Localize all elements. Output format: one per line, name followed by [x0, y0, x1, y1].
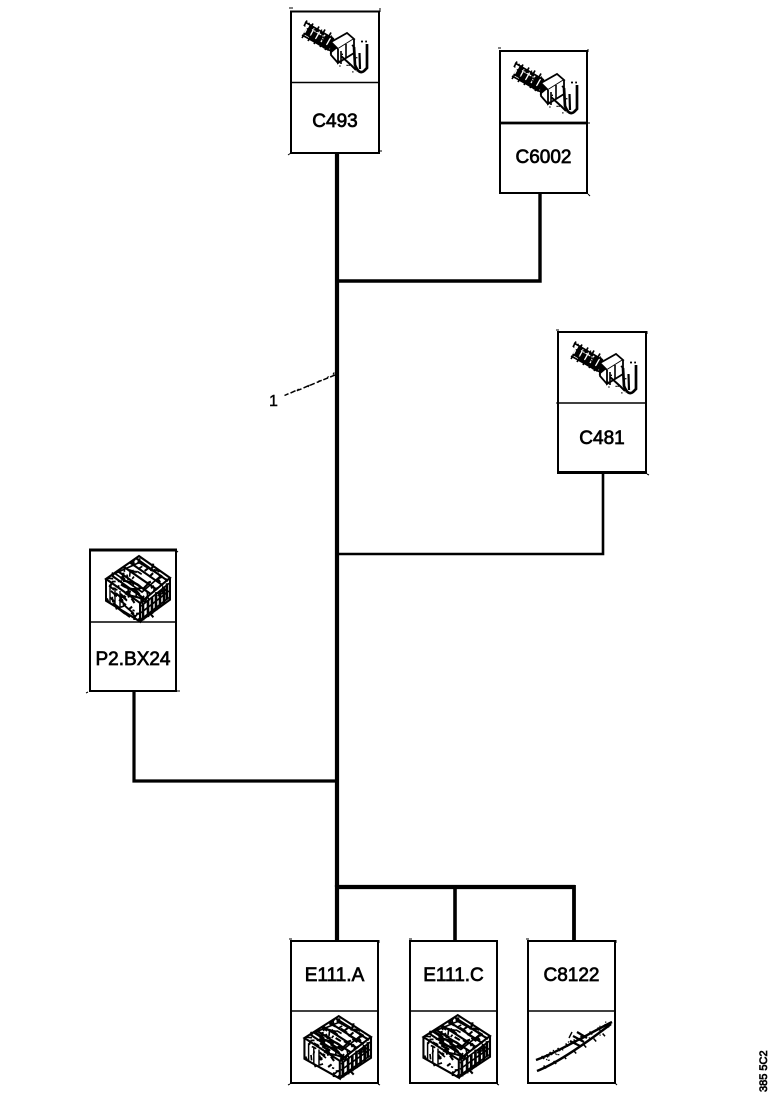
svg-text:C493: C493	[312, 111, 357, 132]
svg-text:P2.BX24: P2.BX24	[96, 649, 171, 670]
svg-text:C8122: C8122	[544, 965, 600, 986]
svg-text:385 5C2: 385 5C2	[758, 1050, 770, 1092]
svg-text:1: 1	[269, 393, 278, 410]
svg-text:E111.A: E111.A	[305, 965, 365, 986]
svg-text:C6002: C6002	[516, 147, 572, 168]
svg-text:C481: C481	[579, 428, 624, 449]
svg-text:E111.C: E111.C	[423, 965, 484, 986]
